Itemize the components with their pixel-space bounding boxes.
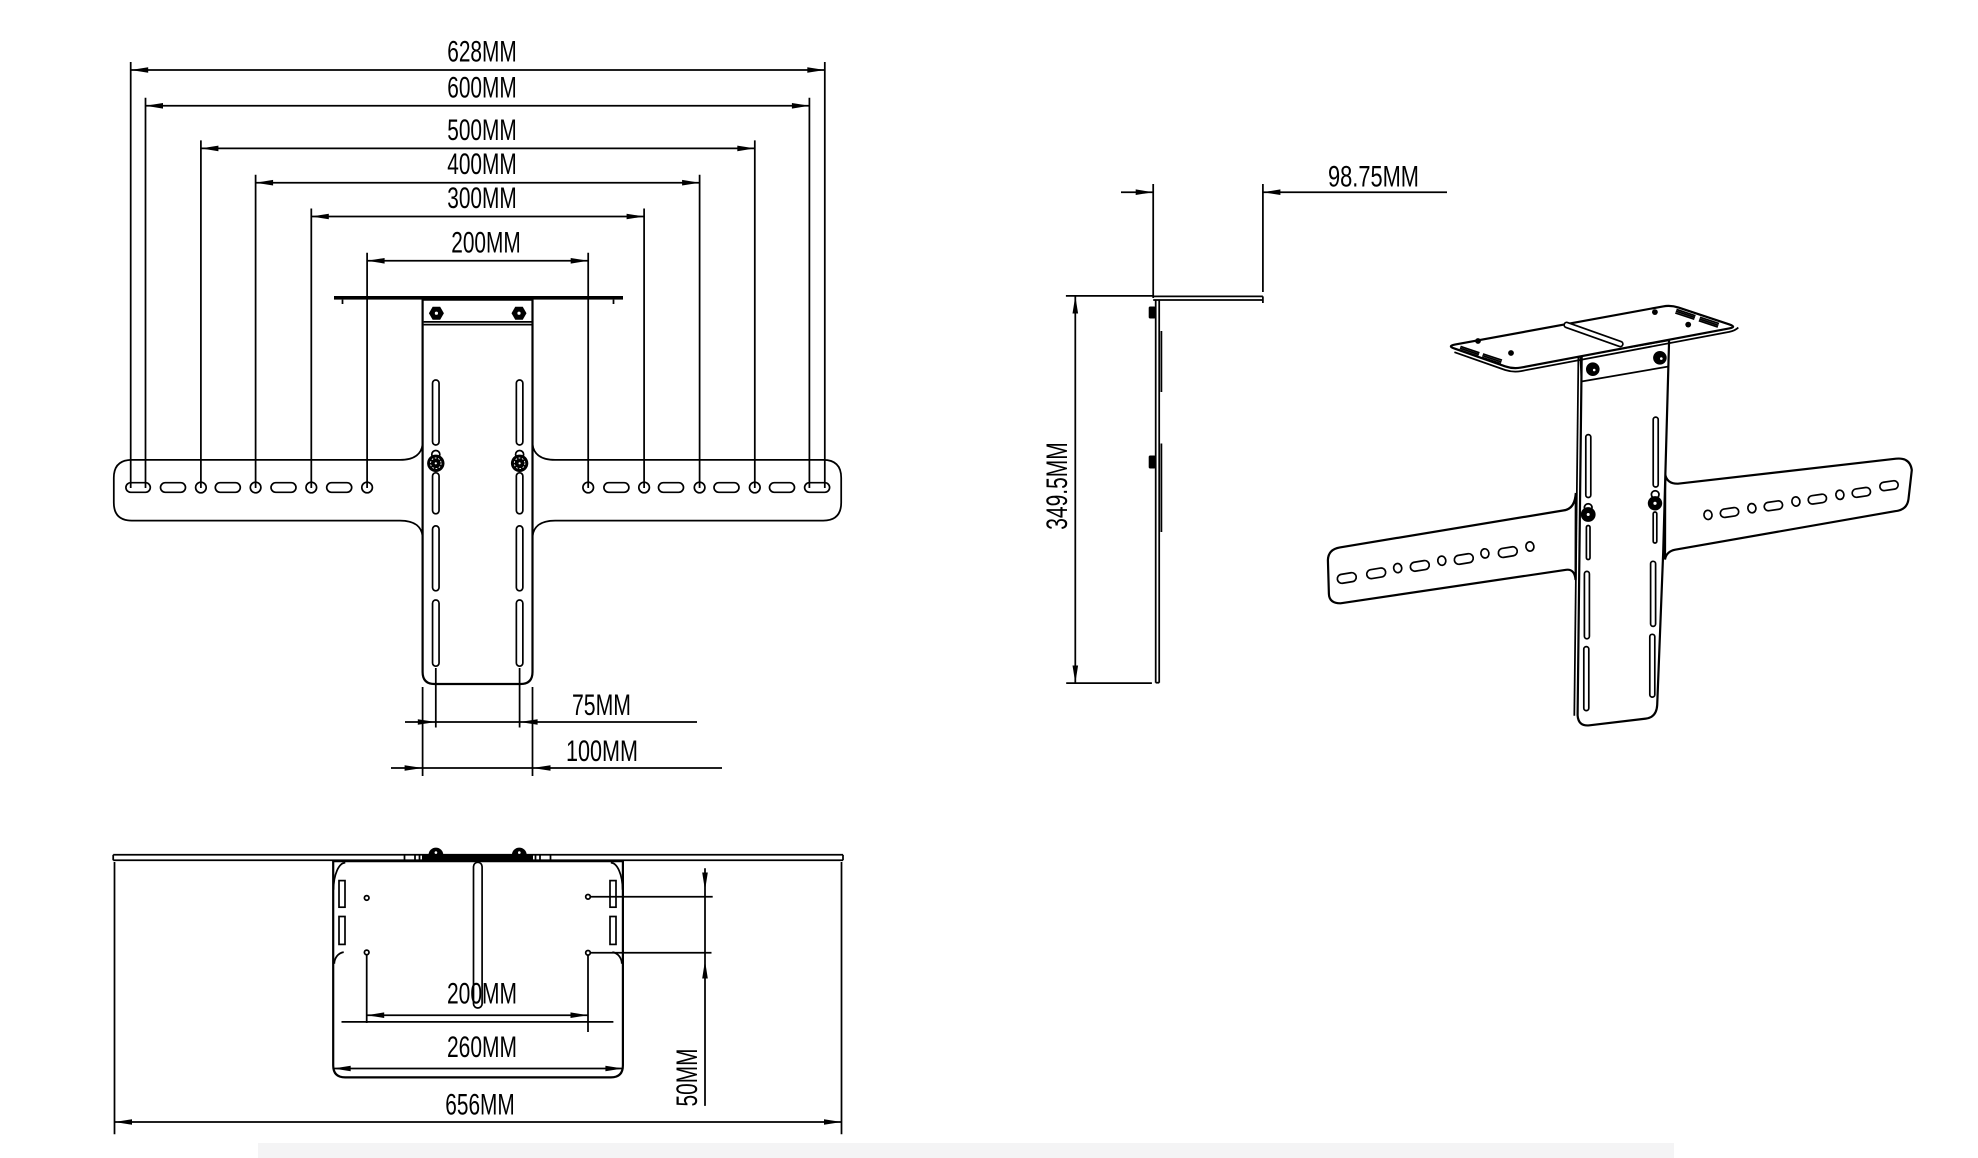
- svg-text:500MM: 500MM: [447, 114, 517, 147]
- svg-text:75MM: 75MM: [572, 689, 631, 722]
- svg-text:656MM: 656MM: [445, 1089, 514, 1122]
- svg-text:349.5MM: 349.5MM: [1041, 442, 1074, 530]
- svg-text:400MM: 400MM: [447, 148, 517, 181]
- svg-text:200MM: 200MM: [447, 978, 517, 1011]
- svg-text:300MM: 300MM: [447, 182, 517, 215]
- svg-text:628MM: 628MM: [447, 36, 517, 69]
- svg-text:100MM: 100MM: [566, 735, 638, 768]
- svg-text:50MM: 50MM: [671, 1049, 704, 1107]
- svg-text:200MM: 200MM: [451, 226, 521, 259]
- svg-text:260MM: 260MM: [447, 1031, 517, 1064]
- svg-text:600MM: 600MM: [447, 71, 517, 104]
- svg-text:98.75MM: 98.75MM: [1328, 161, 1419, 194]
